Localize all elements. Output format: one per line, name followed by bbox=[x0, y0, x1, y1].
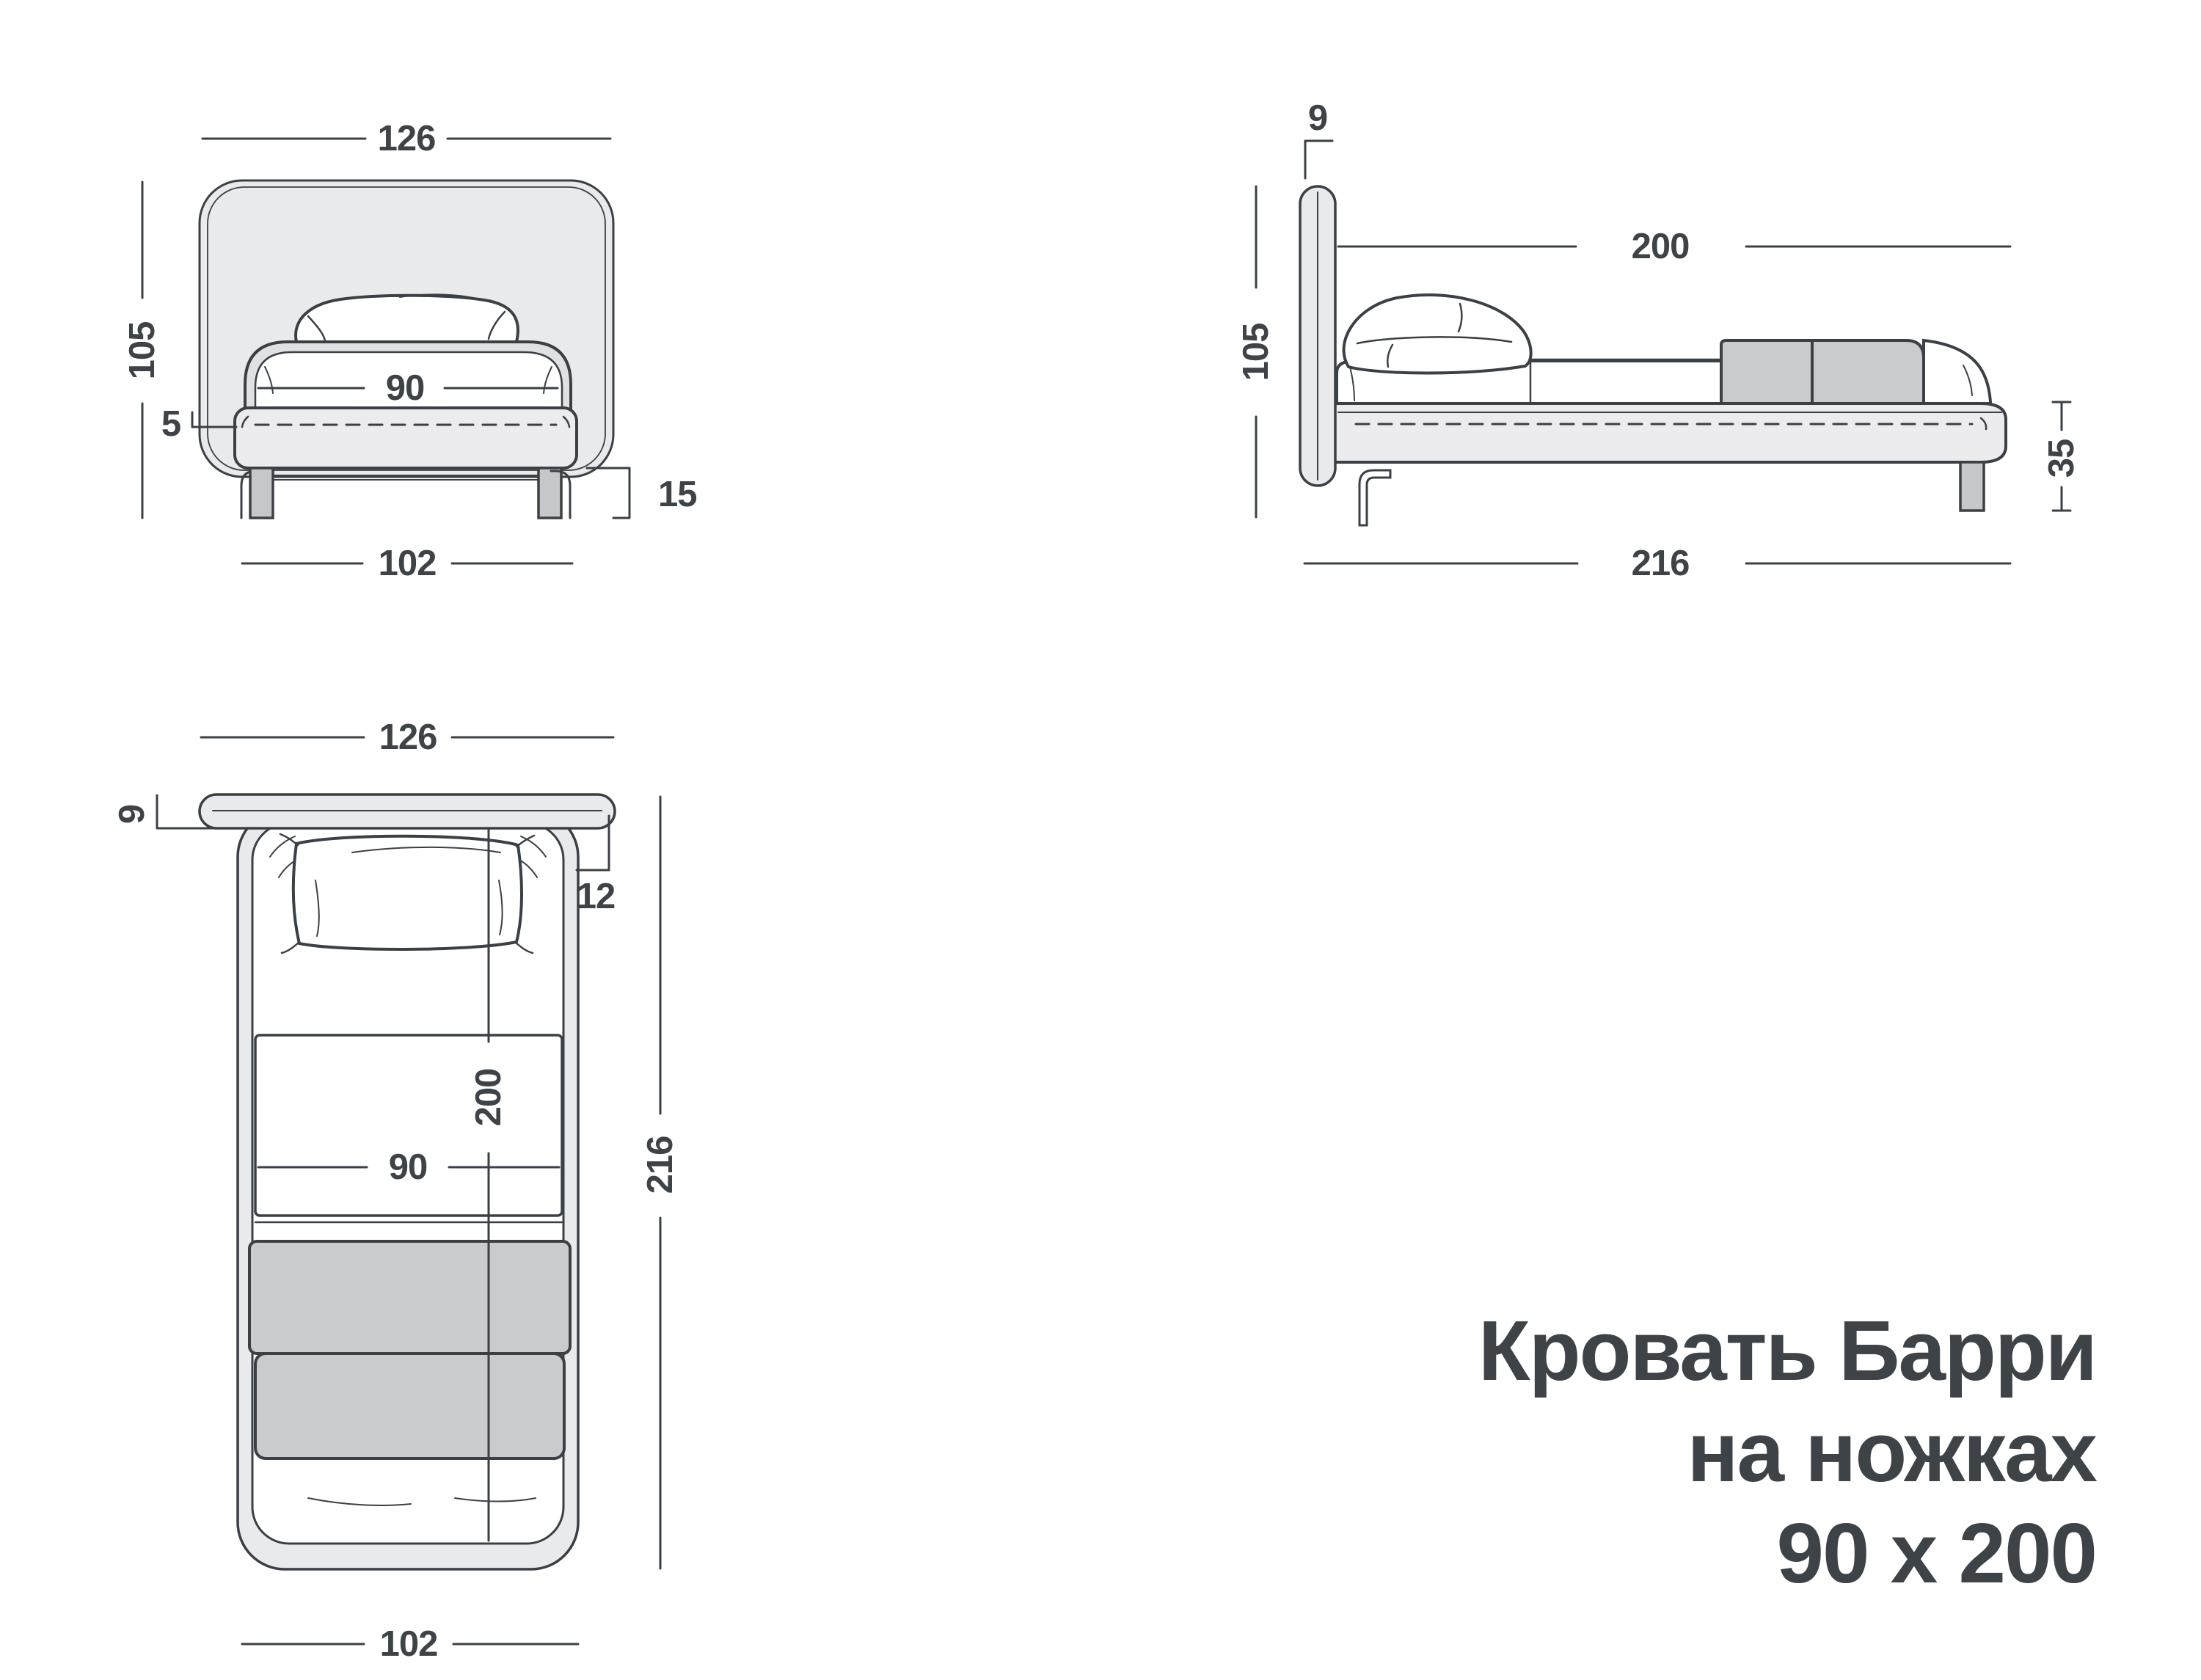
blanket-panel-1 bbox=[1721, 340, 1812, 403]
dim-headboard-width: 126 bbox=[202, 119, 610, 158]
top-view: 126 9 12 200 90 216 102 bbox=[112, 717, 680, 1664]
dim-label-102: 102 bbox=[379, 544, 437, 583]
pillow bbox=[296, 296, 518, 346]
product-title: Кровать Барри на ножках 90 х 200 bbox=[1478, 1300, 2096, 1604]
pillow bbox=[1344, 295, 1531, 373]
dim-label-5: 5 bbox=[161, 404, 180, 444]
blanket-panel-2 bbox=[1812, 340, 1924, 403]
dim-label-200: 200 bbox=[1632, 227, 1690, 266]
dim-base-width: 102 bbox=[242, 544, 572, 583]
dim-label-216: 216 bbox=[1632, 544, 1690, 583]
dim-label-12: 12 bbox=[577, 877, 616, 916]
dim-overall-height: 105 bbox=[1236, 186, 1276, 517]
dim-label-216: 216 bbox=[640, 1136, 680, 1194]
dim-label-126: 126 bbox=[379, 717, 437, 757]
side-view: 9 200 105 35 216 bbox=[1236, 98, 2081, 583]
leg-right bbox=[539, 468, 561, 518]
product-title-line-2: на ножках bbox=[1478, 1401, 2096, 1502]
dim-label-90: 90 bbox=[389, 1147, 428, 1187]
dim-label-9: 9 bbox=[1308, 98, 1327, 138]
mattress-foot-corner bbox=[1924, 340, 1990, 403]
dim-label-105: 105 bbox=[123, 322, 162, 380]
dim-label-15: 15 bbox=[658, 475, 697, 514]
sheet bbox=[255, 1035, 562, 1216]
dim-total-length: 216 bbox=[1304, 544, 2010, 583]
front-view: 90 126 105 5 15 bbox=[123, 119, 697, 583]
dim-sleeping-length: 200 bbox=[1338, 227, 2010, 266]
leg-left bbox=[250, 468, 273, 518]
dim-label-126: 126 bbox=[378, 119, 436, 158]
blanket-band-1 bbox=[249, 1241, 570, 1354]
dim-label-102: 102 bbox=[380, 1624, 438, 1664]
dim-label-9: 9 bbox=[112, 805, 152, 824]
pillow bbox=[293, 836, 522, 949]
leg-head bbox=[1359, 470, 1390, 525]
dim-total-length: 216 bbox=[640, 797, 680, 1568]
dim-label-90: 90 bbox=[386, 368, 425, 408]
base-frame bbox=[235, 408, 577, 468]
dim-overall-height: 105 bbox=[123, 182, 162, 518]
leg-foot bbox=[1960, 462, 1984, 511]
dim-base-height: 35 bbox=[2042, 402, 2081, 511]
product-title-line-1: Кровать Барри bbox=[1478, 1300, 2096, 1401]
dim-side-overhang: 12 bbox=[577, 816, 616, 916]
dim-base-width: 102 bbox=[242, 1624, 578, 1664]
dim-label-35: 35 bbox=[2042, 439, 2081, 478]
dim-headboard-width: 126 bbox=[201, 717, 613, 757]
dim-label-105: 105 bbox=[1236, 324, 1276, 381]
dim-headboard-thickness: 9 bbox=[1305, 98, 1332, 178]
dim-label-200: 200 bbox=[469, 1069, 508, 1127]
blanket-band-2 bbox=[255, 1354, 564, 1458]
product-title-line-3: 90 х 200 bbox=[1478, 1502, 2096, 1604]
dim-leg-height: 15 bbox=[587, 468, 697, 518]
